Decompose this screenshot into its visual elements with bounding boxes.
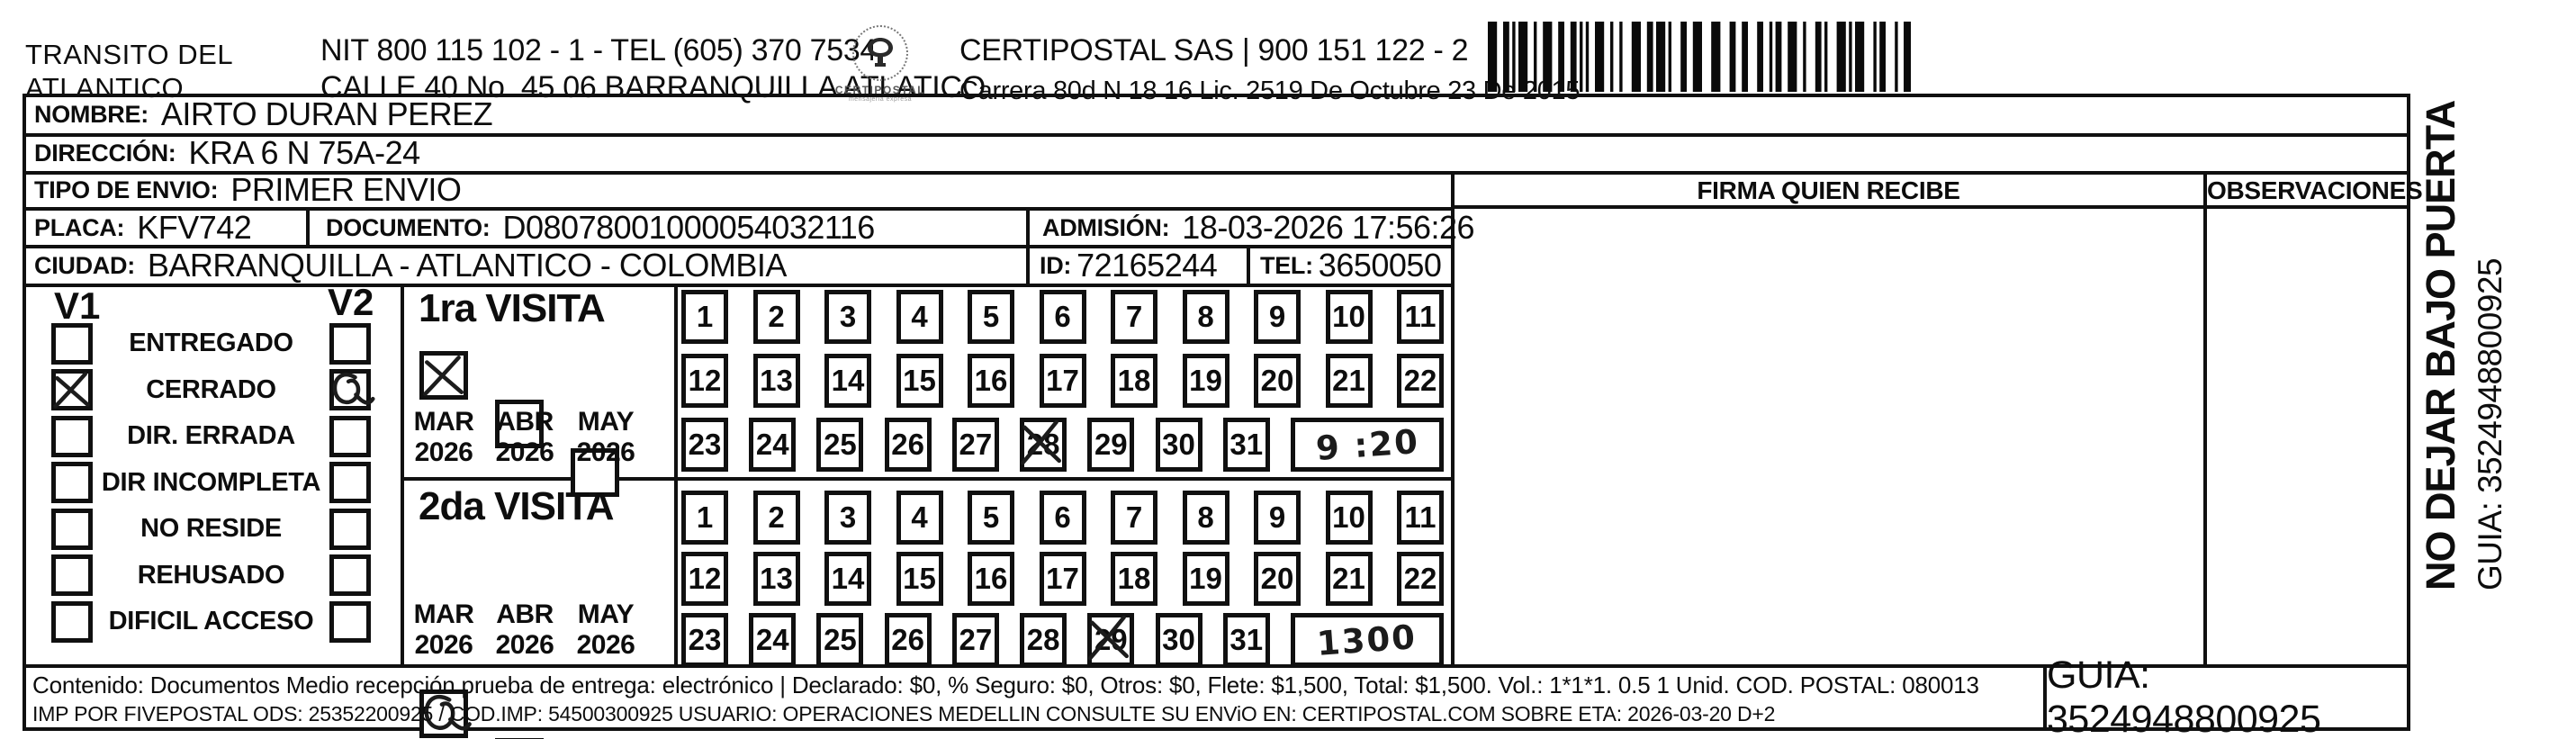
year-label: 2026 [488, 630, 562, 661]
visit2-day-22[interactable]: 22 [1397, 552, 1444, 606]
side-guia-number: GUIA: 3524948800925 [2472, 167, 2509, 590]
visit2-day-4[interactable]: 4 [896, 491, 943, 545]
status-option-label: REHUSADO [93, 561, 329, 590]
visit1-day-1[interactable]: 1 [681, 290, 728, 344]
visit2-day-18[interactable]: 18 [1111, 552, 1157, 606]
v1-column-header: V1 [54, 284, 100, 328]
status-option-dir-incompleta: DIR INCOMPLETA [51, 462, 371, 504]
v1-checkbox-cerrado[interactable] [51, 369, 93, 410]
handwritten-x-mark [420, 352, 467, 399]
visit2-day-26[interactable]: 26 [885, 613, 932, 667]
visit1-time-handwritten: 9 :20 [1314, 422, 1420, 468]
visit1-day-21[interactable]: 21 [1326, 354, 1373, 408]
nombre-value: AIRTO DURAN PEREZ [161, 95, 492, 133]
visit2-day-23[interactable]: 23 [681, 613, 728, 667]
documento-cell: DOCUMENTO: D08078001000054032116 [326, 211, 875, 245]
visit2-day-29[interactable]: 29 [1087, 613, 1134, 667]
tracking-barcode [1488, 22, 1913, 92]
v1-checkbox-dir-errada[interactable] [51, 416, 93, 457]
visit1-day-24[interactable]: 24 [749, 418, 796, 472]
visit1-day-row-3: 2324252627282930319 :20 [681, 418, 1444, 472]
delivery-form: TRANSITO DEL ATLANTICO NIT 800 115 102 -… [0, 0, 2576, 739]
visit1-day-row-1: 1234567891011 [681, 290, 1444, 344]
visit1-day-8[interactable]: 8 [1183, 290, 1229, 344]
visit2-day-9[interactable]: 9 [1254, 491, 1301, 545]
visit1-day-row-2: 1213141516171819202122 [681, 354, 1444, 408]
visit2-time-box[interactable]: 1300 [1291, 613, 1444, 667]
placa-value: KFV742 [137, 209, 251, 247]
status-option-dir-errada: DIR. ERRADA [51, 415, 371, 457]
visit2-day-row-2: 1213141516171819202122 [681, 552, 1444, 606]
month-label: ABR [488, 599, 562, 630]
id-cell: ID: 72165244 [1040, 248, 1217, 283]
visit1-time-box[interactable]: 9 :20 [1291, 418, 1444, 472]
ciudad-cell: CIUDAD: BARRANQUILLA - ATLANTICO - COLOM… [34, 248, 787, 283]
id-value: 72165244 [1076, 247, 1217, 284]
status-option-label: ENTREGADO [93, 329, 329, 358]
placa-label: PLACA: [34, 214, 124, 242]
visit2-day-1[interactable]: 1 [681, 491, 728, 545]
v1-checkbox-no-reside[interactable] [51, 509, 93, 550]
visit2-day-3[interactable]: 3 [824, 491, 871, 545]
tipo-envio-value: PRIMER ENVIO [230, 171, 461, 209]
direccion-label: DIRECCIÓN: [34, 140, 176, 167]
month-label: MAY [569, 599, 643, 630]
visit2-day-12[interactable]: 12 [681, 552, 728, 606]
visit1-day-18[interactable]: 18 [1111, 354, 1157, 408]
documento-label: DOCUMENTO: [326, 214, 491, 242]
visit2-day-14[interactable]: 14 [824, 552, 871, 606]
visit1-day-28[interactable]: 28 [1020, 418, 1067, 472]
visit2-day-17[interactable]: 17 [1040, 552, 1086, 606]
logo-circle [852, 25, 908, 81]
v2-checkbox-cerrado[interactable] [329, 369, 371, 410]
status-option-dificil-acceso: DIFICIL ACCESO [51, 600, 371, 643]
nombre-row: NOMBRE: AIRTO DURAN PEREZ [34, 97, 492, 131]
certipostal-logo: CERTIPOSTAL mensajeria expresa [826, 25, 934, 103]
visit1-day-7[interactable]: 7 [1111, 290, 1157, 344]
ciudad-label: CIUDAD: [34, 252, 135, 280]
visit1-day-11[interactable]: 11 [1397, 290, 1444, 344]
observaciones-area[interactable] [2207, 209, 2407, 661]
visit2-day-15[interactable]: 15 [896, 552, 943, 606]
visit1-day-9[interactable]: 9 [1254, 290, 1301, 344]
status-option-label: DIR INCOMPLETA [93, 468, 329, 498]
status-option-label: CERRADO [93, 375, 329, 405]
month-checkbox-mar[interactable] [419, 351, 468, 400]
v2-column-header: V2 [328, 281, 374, 324]
visit1-title: 1ra VISITA [419, 286, 605, 331]
handwritten-x-mark [1018, 416, 1065, 468]
visit1-day-23[interactable]: 23 [681, 418, 728, 472]
v1-checkbox-entregado[interactable] [51, 323, 93, 365]
firma-signature-area[interactable] [1455, 209, 2200, 661]
visit2-day-24[interactable]: 24 [749, 613, 796, 667]
status-option-label: DIFICIL ACCESO [93, 607, 329, 636]
status-option-entregado: ENTREGADO [51, 322, 371, 365]
visit2-day-2[interactable]: 2 [753, 491, 800, 545]
visit2-day-row-3: 2324252627282930311300 [681, 613, 1444, 667]
visit1-day-27[interactable]: 27 [952, 418, 999, 472]
status-option-no-reside: NO RESIDE [51, 508, 371, 550]
visit1-day-12[interactable]: 12 [681, 354, 728, 408]
month-label: ABR [488, 407, 562, 437]
divider [1247, 245, 1250, 284]
divider [306, 207, 310, 245]
visit1-day-19[interactable]: 19 [1183, 354, 1229, 408]
handwritten-loop-mark [329, 369, 371, 410]
v1-checkbox-rehusado[interactable] [51, 554, 93, 596]
visit1-day-2[interactable]: 2 [753, 290, 800, 344]
visit1-month-labels: MAR ABR MAY [407, 407, 643, 437]
side-strip: NO DEJAR BAJO PUERTA GUIA: 3524948800925 [2418, 167, 2509, 590]
nombre-label: NOMBRE: [34, 101, 149, 129]
admision-cell: ADMISIÓN: 18-03-2026 17:56:26 [1042, 211, 1474, 245]
v2-checkbox-entregado[interactable] [329, 323, 371, 365]
visit2-day-row-1: 1234567891011 [681, 491, 1444, 545]
visit2-day-19[interactable]: 19 [1183, 552, 1229, 606]
v2-checkbox-dir-errada[interactable] [329, 416, 371, 457]
year-label: 2026 [569, 437, 643, 468]
v1-checkbox-dir-incompleta[interactable] [51, 462, 93, 503]
direccion-row: DIRECCIÓN: KRA 6 N 75A-24 [34, 136, 420, 170]
firma-quien-recibe-header: FIRMA QUIEN RECIBE [1454, 176, 2203, 205]
v2-checkbox-dir-incompleta[interactable] [329, 462, 371, 503]
ciudad-value: BARRANQUILLA - ATLANTICO - COLOMBIA [148, 247, 787, 284]
visit2-day-5[interactable]: 5 [968, 491, 1014, 545]
tel-value: 3650050 [1319, 247, 1442, 284]
documento-value: D08078001000054032116 [503, 209, 875, 247]
visit2-day-11[interactable]: 11 [1397, 491, 1444, 545]
guia-number-box: GUIA: 3524948800925 [2047, 668, 2407, 727]
divider [1026, 207, 1030, 284]
visit1-day-14[interactable]: 14 [824, 354, 871, 408]
visit2-month-labels: MAR ABR MAY [407, 599, 643, 630]
visit2-day-27[interactable]: 27 [952, 613, 999, 667]
year-label: 2026 [407, 437, 481, 468]
tel-label: TEL: [1260, 252, 1313, 280]
visit1-day-20[interactable]: 20 [1254, 354, 1301, 408]
shipper-name-line1: TRANSITO DEL [25, 38, 233, 71]
visit1-day-16[interactable]: 16 [968, 354, 1014, 408]
visit2-day-13[interactable]: 13 [753, 552, 800, 606]
admision-label: ADMISIÓN: [1042, 214, 1169, 242]
visit2-day-28[interactable]: 28 [1020, 613, 1067, 667]
imp-line: IMP POR FIVEPOSTAL ODS: 25352200925 / CO… [32, 702, 1775, 726]
visit2-day-25[interactable]: 25 [816, 613, 863, 667]
tipo-envio-row: TIPO DE ENVIO: PRIMER ENVIO [34, 173, 461, 207]
visit2-day-16[interactable]: 16 [968, 552, 1014, 606]
visit1-day-3[interactable]: 3 [824, 290, 871, 344]
visit1-day-5[interactable]: 5 [968, 290, 1014, 344]
v1-checkbox-dificil-acceso[interactable] [51, 601, 93, 643]
visit1-year-labels: 2026 2026 2026 [407, 437, 643, 468]
visit2-time-handwritten: 1300 [1316, 617, 1419, 663]
visit2-year-labels: 2026 2026 2026 [407, 630, 643, 661]
visit2-day-6[interactable]: 6 [1040, 491, 1086, 545]
visit1-day-17[interactable]: 17 [1040, 354, 1086, 408]
no-dejar-bajo-puerta-warning: NO DEJAR BAJO PUERTA [2418, 167, 2464, 590]
year-label: 2026 [569, 630, 643, 661]
visit1-day-25[interactable]: 25 [816, 418, 863, 472]
contenido-line: Contenido: Documentos Medio recepción pr… [32, 671, 1979, 699]
year-label: 2026 [407, 630, 481, 661]
placa-cell: PLACA: KFV742 [34, 211, 251, 245]
visit1-day-10[interactable]: 10 [1326, 290, 1373, 344]
admision-value: 18-03-2026 17:56:26 [1182, 209, 1474, 247]
visit2-title: 2da VISITA [419, 484, 614, 529]
v2-checkbox-no-reside[interactable] [329, 509, 371, 550]
year-label: 2026 [488, 437, 562, 468]
tel-cell: TEL: 3650050 [1260, 248, 1441, 283]
visit1-day-4[interactable]: 4 [896, 290, 943, 344]
visit2-day-10[interactable]: 10 [1326, 491, 1373, 545]
visit1-day-30[interactable]: 30 [1156, 418, 1202, 472]
visit1-day-13[interactable]: 13 [753, 354, 800, 408]
visit2-day-31[interactable]: 31 [1223, 613, 1270, 667]
visit1-day-26[interactable]: 26 [885, 418, 932, 472]
visit2-day-21[interactable]: 21 [1326, 552, 1373, 606]
divider [674, 284, 678, 664]
handwritten-x-mark [51, 369, 93, 410]
month-label: MAR [407, 599, 481, 630]
visit1-day-6[interactable]: 6 [1040, 290, 1086, 344]
visit2-day-30[interactable]: 30 [1156, 613, 1202, 667]
visit1-day-15[interactable]: 15 [896, 354, 943, 408]
carrier-line: CERTIPOSTAL SAS | 900 151 122 - 2 [959, 32, 1580, 69]
tipo-envio-label: TIPO DE ENVIO: [34, 176, 218, 204]
divider [401, 284, 404, 664]
status-option-label: DIR. ERRADA [93, 421, 329, 451]
month-label: MAR [407, 407, 481, 437]
visit2-day-7[interactable]: 7 [1111, 491, 1157, 545]
v2-checkbox-dificil-acceso[interactable] [329, 601, 371, 643]
v2-checkbox-rehusado[interactable] [329, 554, 371, 596]
postal-pin-icon [865, 36, 896, 70]
status-option-label: NO RESIDE [93, 514, 329, 544]
id-label: ID: [1040, 252, 1071, 280]
divider [401, 477, 1453, 481]
visit1-day-31[interactable]: 31 [1223, 418, 1270, 472]
observaciones-header: OBSERVACIONES [2207, 176, 2410, 205]
status-option-cerrado: CERRADO [51, 369, 371, 411]
visit2-day-8[interactable]: 8 [1183, 491, 1229, 545]
direccion-value: KRA 6 N 75A-24 [189, 134, 420, 172]
month-label: MAY [569, 407, 643, 437]
handwritten-x-mark [1085, 611, 1132, 663]
visit2-day-20[interactable]: 20 [1254, 552, 1301, 606]
visit1-day-22[interactable]: 22 [1397, 354, 1444, 408]
status-option-rehusado: REHUSADO [51, 554, 371, 597]
visit1-day-29[interactable]: 29 [1087, 418, 1134, 472]
